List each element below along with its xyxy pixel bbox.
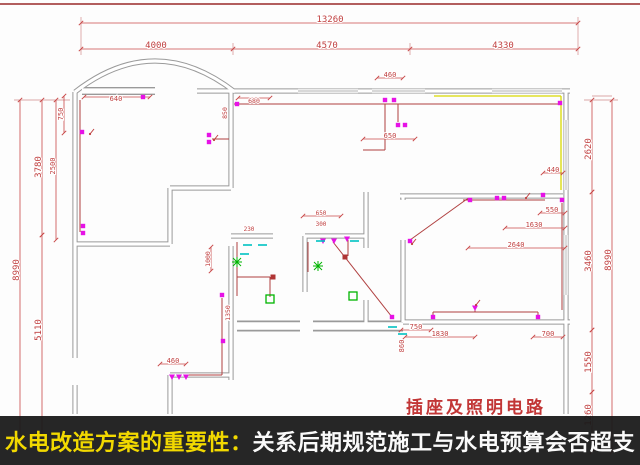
dimension-label: 460 <box>384 71 397 79</box>
switch-lever-dot <box>525 197 527 199</box>
switch-symbol <box>472 306 478 312</box>
socket-symbol <box>207 140 211 144</box>
switch-lever-dot <box>89 133 91 135</box>
socket-symbol <box>220 293 224 297</box>
socket-symbol <box>403 123 407 127</box>
socket-symbol <box>81 224 85 228</box>
socket-symbol <box>392 98 396 102</box>
dimension-label: 3780 <box>34 156 44 178</box>
dimension-label: 860 <box>398 340 406 353</box>
socket-symbol <box>560 198 564 202</box>
socket-symbol <box>390 315 394 319</box>
switch-symbol <box>344 237 350 243</box>
dimension-label: 700 <box>542 330 555 338</box>
dimension-label: 8990 <box>12 259 22 281</box>
dimension-label: 440 <box>547 166 560 174</box>
socket-symbol <box>207 133 211 137</box>
socket-symbol <box>408 239 412 243</box>
dimension-label: 13260 <box>316 15 343 25</box>
dimension-label: 640 <box>110 95 123 103</box>
banner-highlight-text: 水电改造方案的重要性： <box>5 425 253 457</box>
dimension-label: 1550 <box>584 351 594 373</box>
socket-symbol <box>235 102 239 106</box>
dimension-label: 5110 <box>34 319 44 341</box>
ceiling-light-symbol <box>349 292 357 300</box>
socket-symbol <box>536 315 540 319</box>
socket-symbol <box>383 98 387 102</box>
dimension-label: 8990 <box>604 249 614 271</box>
dimension-label: 3460 <box>584 250 594 272</box>
dimension-label: 680 <box>248 97 260 105</box>
dimension-label: 2640 <box>508 241 525 249</box>
dimension-label: 650 <box>316 210 327 217</box>
socket-symbol <box>396 123 400 127</box>
banner-main-text: 关系后期规范施工与水电预算会否超支 <box>253 425 636 457</box>
dimension-label: 4000 <box>145 41 167 51</box>
dimension-label: 2500 <box>49 158 57 175</box>
dimension-label: 2620 <box>584 138 594 160</box>
socket-symbol <box>141 95 145 99</box>
dimension-label: 4570 <box>316 41 338 51</box>
screenshot-root: 1326040004570433089903780511025007506406… <box>0 0 640 465</box>
socket-symbol <box>431 315 435 319</box>
floor-plan: 1326040004570433089903780511025007506406… <box>0 0 640 465</box>
socket-symbol <box>495 196 499 200</box>
wire <box>333 242 392 317</box>
socket-symbol <box>502 196 506 200</box>
junction-symbol <box>271 275 276 280</box>
junction-symbol <box>343 255 348 260</box>
caption-banner: 水电改造方案的重要性：关系后期规范施工与水电预算会否超支 <box>0 416 640 465</box>
floor-plan-content: 1326040004570433089903780511025007506406… <box>12 15 618 454</box>
dimension-label: 300 <box>316 221 327 228</box>
dimension-label: 230 <box>244 226 255 233</box>
dimension-label: 650 <box>384 132 397 140</box>
switch-lever-dot <box>411 243 413 245</box>
dimension-label: 1630 <box>526 221 543 229</box>
socket-symbol <box>221 339 225 343</box>
dimension-label: 550 <box>546 206 559 214</box>
socket-symbol <box>541 193 545 197</box>
switch-lever-dot <box>475 304 477 306</box>
wire <box>410 199 467 240</box>
dimension-label: 4330 <box>492 41 514 51</box>
socket-symbol <box>468 198 472 202</box>
dimension-label: 850 <box>221 107 229 119</box>
socket-symbol <box>558 101 562 105</box>
dimension-label: 460 <box>167 357 180 365</box>
switch-symbol <box>331 239 337 245</box>
dimension-label: 1000 <box>204 251 212 267</box>
socket-symbol <box>80 130 84 134</box>
switch-lever-dot <box>213 139 215 141</box>
dimension-label: 750 <box>410 323 423 331</box>
dimension-label: 1830 <box>432 330 449 338</box>
dimension-label: 1350 <box>224 305 232 321</box>
dimension-label: 750 <box>57 108 65 121</box>
socket-symbol <box>81 231 85 235</box>
plan-title: 插座及照明电路 <box>406 397 546 418</box>
